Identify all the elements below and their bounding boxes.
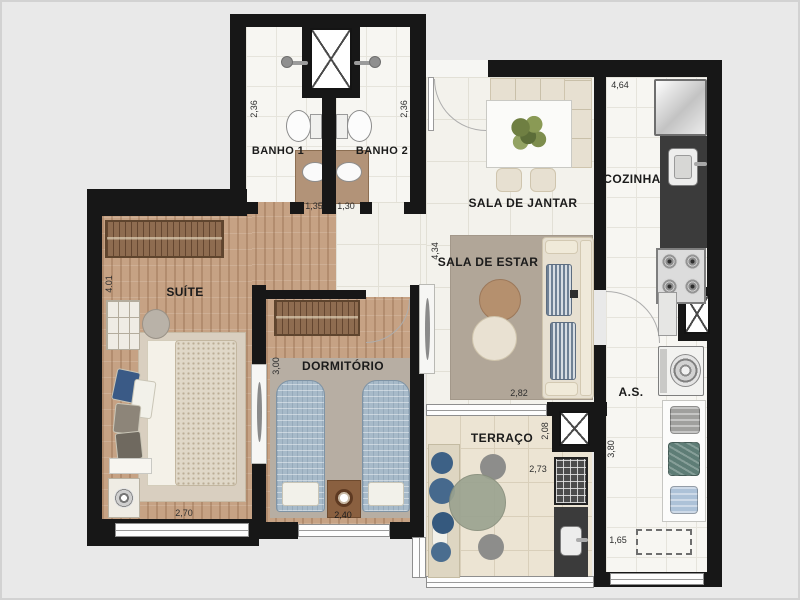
- sofa-decor-item: [570, 290, 578, 298]
- toilet-banho1: [286, 110, 311, 142]
- wall-left: [87, 189, 102, 546]
- toilet-banho2: [347, 110, 372, 142]
- sofa-armrest-bottom: [545, 382, 578, 396]
- label-suite: SUÍTE: [166, 285, 203, 299]
- wall-bath-stub-1: [246, 202, 258, 214]
- label-banho1: BANHO 1: [252, 145, 304, 157]
- bedroom-pillow-right: [368, 482, 404, 506]
- dim-banho1-height: 2,36: [249, 100, 259, 118]
- dim-dormitorio-height: 3,00: [271, 357, 281, 375]
- label-sala-estar: SALA DE ESTAR: [438, 255, 539, 269]
- dim-sala-estar-height: 4,34: [430, 242, 440, 260]
- terrace-table: [449, 474, 506, 531]
- entry-door-leaf: [428, 77, 434, 131]
- pouf-brown: [479, 279, 521, 321]
- fridge: [654, 79, 707, 136]
- terrace-side-railing: [412, 537, 426, 578]
- terrace-sliding-door: [426, 404, 547, 416]
- tv-living: [425, 298, 430, 360]
- terrace-plant-1: [431, 452, 453, 474]
- suite-speaker: [114, 488, 134, 508]
- terrace-faucet: [576, 538, 588, 542]
- dining-chair-2: [530, 168, 556, 192]
- dim-banho2-width: 1,30: [337, 201, 355, 211]
- stove-burner-4: [684, 278, 701, 295]
- washer-control-panel: [660, 349, 667, 393]
- wall-bedroom-bottom-left: [252, 522, 298, 539]
- vanity-sink-2: [336, 162, 362, 182]
- dining-chair-1: [496, 168, 522, 192]
- dim-banho1-width: 1,35: [305, 201, 323, 211]
- washer-drum: [670, 354, 701, 387]
- toilet-tank-banho1: [310, 114, 322, 139]
- service-window: [610, 573, 704, 585]
- floor-plan: BANHO 1 BANHO 2 SALA DE JANTAR COZINHA S…: [0, 0, 800, 600]
- dim-dormitorio-width: 2,40: [334, 510, 352, 520]
- folded-towels-blue: [670, 486, 698, 514]
- dim-suite-height: 4.01: [104, 275, 114, 293]
- dim-sala-estar-width: 2,82: [510, 388, 528, 398]
- barbecue-grill: [554, 457, 588, 505]
- tv-suite: [257, 382, 262, 442]
- table-plant: [508, 112, 550, 156]
- pouf-cream: [472, 316, 517, 361]
- wall-bath-stub-2: [290, 202, 304, 214]
- label-banho2: BANHO 2: [356, 145, 408, 157]
- duct-shaft-bath: [310, 28, 352, 90]
- bedroom-pillow-left: [282, 482, 319, 506]
- label-servico: A.S.: [619, 385, 644, 399]
- wall-suite-top: [87, 189, 247, 216]
- duct-shaft-terrace: [559, 411, 590, 446]
- folded-towels-green: [668, 442, 700, 476]
- suite-bed-duvet: [175, 340, 237, 486]
- wall-bath-stub-3: [360, 202, 372, 214]
- folded-towels-gray: [670, 406, 700, 434]
- wall-bath-stub-4: [404, 202, 426, 214]
- hall-wood-floor: [246, 202, 336, 297]
- dim-servico-width: 1,65: [609, 535, 627, 545]
- suite-throw-dark: [115, 431, 144, 462]
- sofa-armrest-top: [545, 240, 578, 254]
- label-sala-jantar: SALA DE JANTAR: [469, 196, 578, 210]
- label-cozinha: COZINHA: [603, 172, 660, 186]
- sofa-cushion-1: [546, 264, 572, 316]
- dim-servico-height: 3,80: [606, 440, 616, 458]
- shower-head-banho2: [369, 56, 381, 68]
- wall-bedroom-top: [260, 290, 366, 299]
- bedroom-lamp: [335, 489, 353, 507]
- kitchen-tall-cabinet: [658, 292, 677, 336]
- suite-desk: [106, 300, 140, 350]
- service-optional-cabinet: [636, 529, 692, 555]
- dim-terraco-height: 2,08: [540, 422, 550, 440]
- shower-head-banho1: [281, 56, 293, 68]
- label-terraco: TERRAÇO: [471, 431, 533, 445]
- kitchen-faucet: [694, 162, 707, 166]
- terrace-chair-bottom: [478, 534, 504, 560]
- wall-kitchen-divider-lower: [594, 345, 606, 587]
- stove-burner-1: [661, 253, 678, 270]
- terrace-plant-3: [432, 512, 454, 534]
- stove-burner-2: [684, 253, 701, 270]
- wall-bath-right: [410, 14, 426, 214]
- terrace-plant-4: [431, 542, 451, 562]
- suite-window: [115, 523, 249, 537]
- label-dormitorio: DORMITÓRIO: [302, 359, 384, 373]
- bedroom-wardrobe: [274, 300, 360, 336]
- bedroom-window: [298, 524, 390, 537]
- dim-terraco-width: 2,73: [529, 464, 547, 474]
- wall-bath-left: [230, 14, 246, 216]
- suite-foot-bench: [109, 458, 152, 474]
- sofa-backrest: [580, 240, 592, 396]
- dim-cozinha: 4,64: [611, 80, 629, 90]
- suite-wardrobe: [105, 220, 224, 258]
- entry-opening: [426, 60, 488, 77]
- kitchen-sink-basin: [674, 155, 692, 179]
- sofa-cushion-2: [550, 322, 576, 380]
- suite-desk-chair: [142, 309, 170, 339]
- wall-bath-center: [322, 88, 336, 214]
- hall-tile-floor: [336, 202, 426, 297]
- dim-suite-width: 2,70: [175, 508, 193, 518]
- dim-banho2-height: 2,36: [399, 100, 409, 118]
